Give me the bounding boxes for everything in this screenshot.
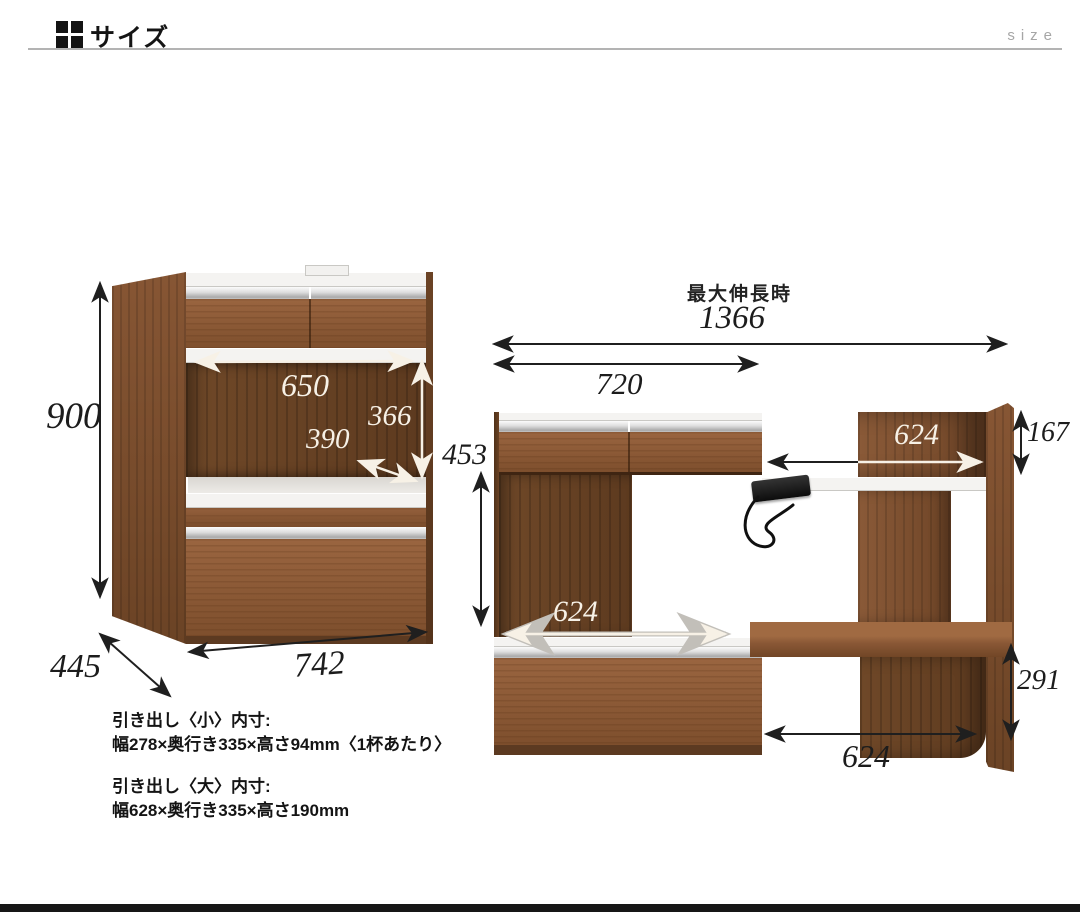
small-drawer-note-title: 引き出し〈小〉内寸: (112, 706, 271, 731)
drawer-handle (499, 421, 628, 432)
drawer-handle (311, 287, 433, 299)
small-drawer-front (186, 299, 309, 348)
wall-bracket (305, 265, 349, 276)
dim-top-shelf-width: 624 (894, 420, 939, 450)
dim-top-right-height: 167 (1027, 419, 1069, 447)
footer-bar (0, 904, 1080, 912)
counter-shelf (186, 348, 433, 363)
dim-inner-width: 650 (281, 369, 329, 401)
small-drawer-front (309, 299, 433, 348)
dim-bottom-open-width: 624 (842, 740, 890, 772)
shelf-front-edge (494, 637, 762, 647)
dim-left-inner-width: 624 (553, 597, 598, 627)
small-drawer-note-dims: 幅278×奥行き335×高さ94mm〈1杯あたり〉 (112, 730, 451, 755)
large-drawer-front (494, 658, 762, 745)
right-unit-mid-shelf (750, 622, 1012, 657)
cabinet-base (186, 636, 433, 644)
dim-height: 900 (46, 398, 102, 435)
large-drawer-note-dims: 幅628×奥行き335×高さ190mm (112, 796, 349, 821)
unit-top-surface (499, 412, 762, 421)
small-drawer-front (499, 432, 628, 472)
large-drawer-front (186, 539, 433, 636)
dim-max-width: 1366 (699, 302, 765, 335)
compartment-floor (188, 477, 431, 493)
drawer-handle (186, 287, 309, 299)
header-divider (28, 48, 1062, 50)
cabinet-left-side-panel (112, 272, 186, 644)
dim-width: 742 (293, 646, 346, 683)
unit-base (494, 745, 762, 755)
cabinet-right-edge (426, 272, 433, 644)
extended-left-unit (494, 412, 762, 755)
shelf-front-edge (186, 493, 433, 508)
right-unit-middle-panel (858, 491, 951, 622)
dim-inner-height: 366 (368, 402, 412, 431)
size-watermark: size (1007, 27, 1058, 44)
dim-inner-depth: 390 (306, 425, 350, 454)
drawer-handle (630, 421, 762, 432)
dim-depth: 445 (50, 650, 101, 684)
size-diagram-page: サイズ size (0, 0, 1080, 912)
dim-open-height: 453 (442, 440, 487, 470)
small-drawer-front (628, 432, 762, 472)
dim-bottom-right-height: 291 (1017, 666, 1061, 695)
right-unit-side-panel (986, 403, 1014, 772)
large-drawer-note-title: 引き出し〈大〉内寸: (112, 772, 271, 797)
grid-icon (56, 21, 83, 48)
cabinet-front (186, 272, 433, 644)
drawer-handle (494, 647, 762, 658)
dim-body-width: 720 (596, 368, 643, 399)
wood-rail (186, 508, 433, 527)
drawer-handle (186, 527, 433, 539)
